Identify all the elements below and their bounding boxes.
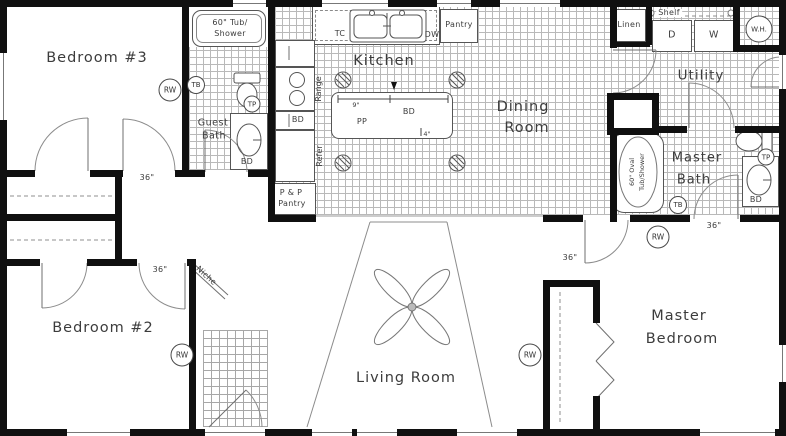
wall-bedroom3-bottom-a [7,170,35,177]
wall-masterbath-bottom-a [543,215,583,222]
window-bedroom3-left [0,53,7,120]
rw-marker-bedroom2: RW [171,344,194,367]
island-dim-top: 9" [352,102,359,109]
bd-label-guest-vanity: BD [241,158,253,166]
refrigerator [275,130,315,182]
window-living-b [357,429,397,436]
wall-pantry-bottom [268,215,316,222]
kitchen-island [331,92,453,139]
bedroom3-closet-door [35,118,88,171]
floor-plan: Bedroom #3 Bedroom #2 Master Bedroom Liv… [0,0,786,436]
island-dim-bottom: 4" [423,131,430,138]
wall-guestbath-bottom-a [189,170,205,177]
bedroom2-label: Bedroom #2 [52,321,154,336]
ceiling-fan [370,265,455,350]
wall-guestbath-kitchen [268,7,275,222]
furnace-closet-interior [614,100,652,128]
guest-bath-label-1: Guest [198,118,228,128]
rw-marker-living: RW [519,344,542,367]
pp-label-island: PP [357,118,367,126]
wall-mbr-closet-top [543,280,600,287]
upper-cabinets-dashed [315,10,437,41]
master-bath-label-1: Master [672,152,722,165]
pantry-label: Pantry [445,21,472,29]
window-living-a [312,429,352,436]
entry-tile-floor [203,330,268,427]
bedroom2-closet-door [42,263,87,308]
wall-outer-top [0,0,786,7]
wall-bedroom3-bottom-c [175,170,189,177]
door-size-master-bedroom: 36" [563,254,578,262]
window-master-bedroom-bottom [700,429,775,436]
master-tub-label-1: 60" Oval [629,158,636,186]
range [275,67,315,111]
tp-marker-guest-bath: TP [244,96,261,113]
tp-marker-master-bath: TP [758,149,775,166]
wall-mbr-closet-right-dn [593,396,600,429]
master-bedroom-label-2: Bedroom [646,332,719,347]
window-kitchen-sink [322,0,388,7]
bifold-closet-doors [596,323,614,399]
bedroom3-entry-door [123,119,175,171]
rw-marker-bedroom3: RW [159,79,182,102]
wall-bedroom2-top-b [87,259,137,266]
door-size-master-bath: 36" [706,222,723,230]
master-bedroom-door [585,220,628,263]
dryer-label: D [668,30,676,40]
pp-pantry-label-2: Pantry [278,200,305,208]
trash-compactor-label: TC [335,30,346,38]
door-size-bedroom3: 36" [140,174,155,182]
wall-guestbath-bottom-b [248,170,268,177]
vaulted-ceiling-lines [307,222,492,427]
wall-closet-right [115,170,122,266]
wall-masterbath-bottom-c [740,215,779,222]
front-door-opening [205,429,265,436]
window-dining [500,0,560,7]
master-tub-label-2: Tub/Shower [639,153,646,191]
window-living-c [457,429,517,436]
wall-masterbath-bottom-b [630,215,690,222]
dining-label-2: Room [504,121,549,136]
door-size-bedroom2: 36" [153,266,168,274]
wall-linen-right [646,7,652,45]
kitchen-label: Kitchen [353,54,415,69]
dishwasher-label: DW [425,31,440,39]
range-label: Range [315,76,323,101]
rw-marker-master: RW [647,226,670,249]
window-bedroom2 [67,429,130,436]
dining-label-1: Dining [497,100,550,115]
master-bath-label-2: Bath [677,174,711,187]
bd-label-master-vanity: BD [750,196,762,204]
shelf-label: Shelf [656,9,682,17]
guest-tub-label-1: 60" Tub/ [212,19,247,27]
wall-closet-divider [7,214,115,221]
tb-marker-guest-bath: TB [187,76,205,94]
tb-marker-master-bath: TB [669,196,687,214]
refer-label: Refer [316,145,324,166]
water-heater-marker: W.H. [746,16,773,43]
master-bedroom-label-1: Master [651,309,707,324]
wall-wh-bottom [733,45,779,52]
washer-label: W [709,30,719,40]
wall-utility-bath-b [735,126,779,133]
wall-mbr-closet-right-up [593,280,600,323]
linen-label: Linen [617,21,640,29]
bedroom3-label: Bedroom #3 [46,51,148,66]
window-pantry [437,0,471,7]
wall-utility-bath-a [652,126,687,133]
kitchen-left-counter [275,40,315,67]
bd-label-island: BD [403,108,415,116]
wall-bedroom2-top-a [7,259,40,266]
bd-label-kitchen: BD [292,116,304,124]
pp-pantry-label-1: P & P [280,189,302,197]
guest-bath-label-2: Bath [202,131,226,141]
wall-mbr-closet-left [543,280,550,429]
utility-door-opening [779,55,786,89]
living-room-label: Living Room [356,371,456,386]
window-master-bedroom-right [779,345,786,382]
niche-label: Niche [194,265,217,287]
utility-label: Utility [678,69,725,83]
wall-linen-bottom [610,42,650,47]
guest-tub-label-2: Shower [214,30,246,38]
window-guesttub [233,0,266,7]
